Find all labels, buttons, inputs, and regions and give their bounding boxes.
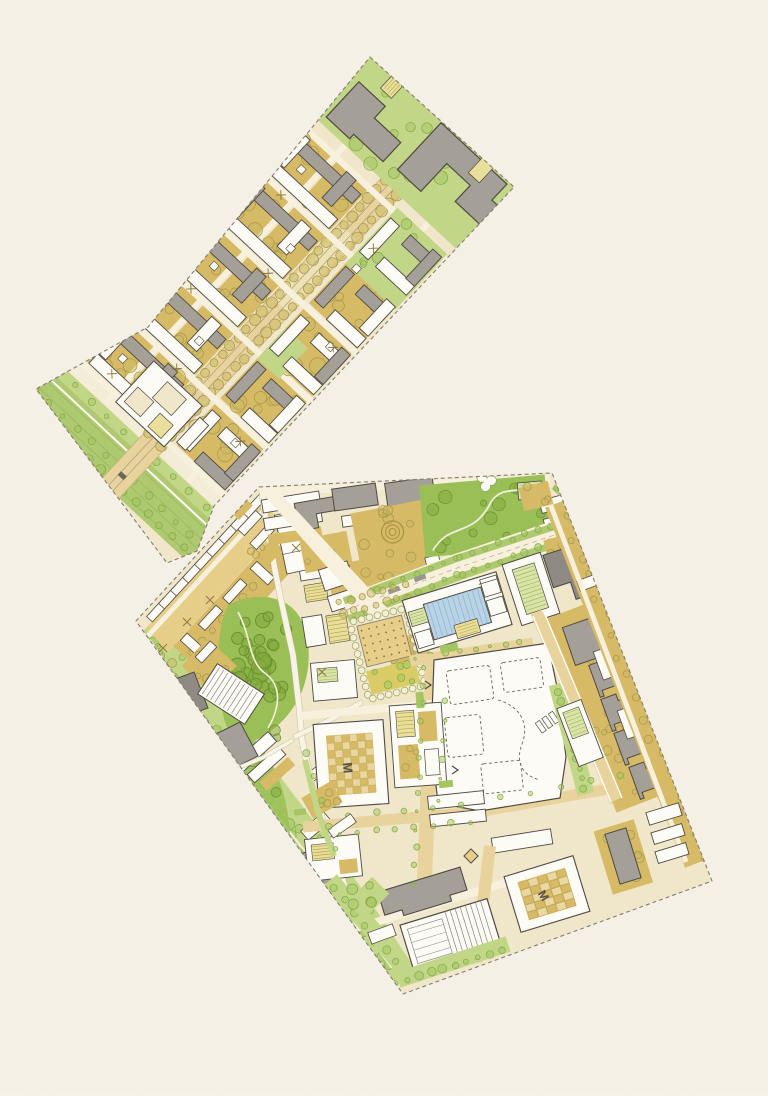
svg-text:M: M	[340, 762, 356, 774]
